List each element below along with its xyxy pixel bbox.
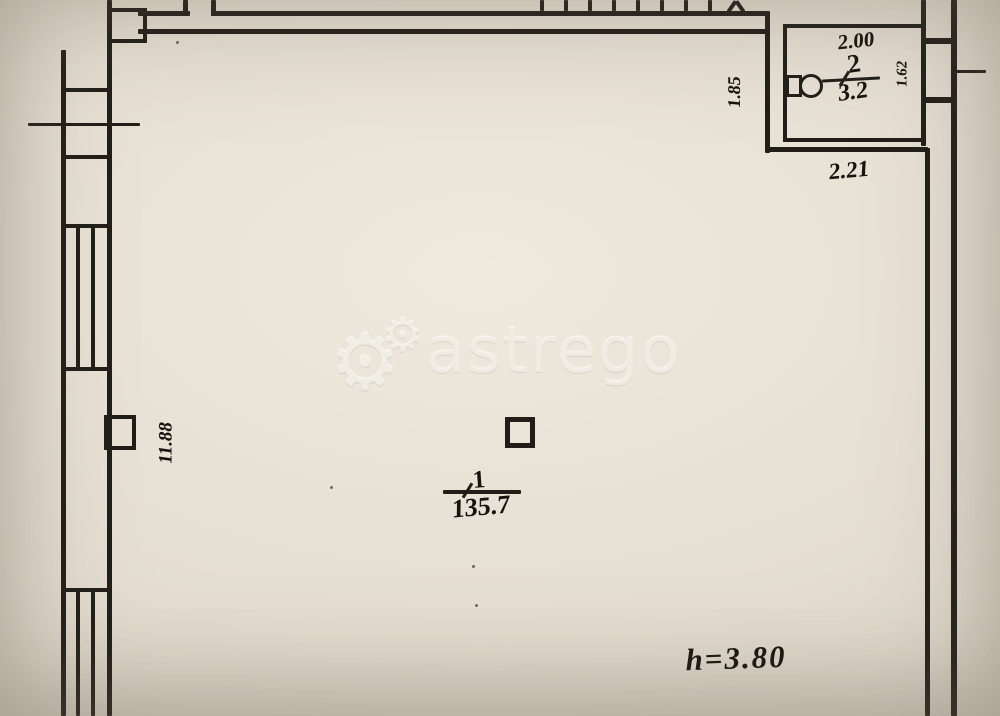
wall-left-divider-2	[61, 155, 112, 159]
window-left-lower-sill-top	[61, 588, 112, 592]
wall-hatch-tick	[564, 0, 568, 11]
wall-left-inner	[107, 0, 112, 716]
wall-hatch-tick	[684, 0, 688, 11]
shaft-stub-bottom	[921, 97, 954, 103]
scan-speck	[475, 604, 478, 607]
wall-hatch-tick	[588, 0, 592, 11]
wall-left-outer	[61, 50, 66, 716]
shaft-stub-top	[921, 38, 954, 44]
dimension-line-left	[28, 123, 140, 126]
toilet-bowl-icon	[799, 74, 823, 98]
dimension-right-shaft: 1.62	[896, 60, 911, 88]
window-left-upper-sill-bottom	[61, 367, 112, 371]
wall-top-left-niche	[107, 8, 147, 43]
window-left-lower-pane-1	[76, 590, 80, 716]
window-left-lower-pane-2	[91, 590, 95, 716]
scan-speck	[330, 486, 333, 489]
wall-top-opening-post-left	[183, 0, 188, 16]
wall-top-outer	[211, 11, 770, 16]
wall-hatch-tick	[660, 0, 664, 11]
room1-area: 135.7	[452, 491, 511, 522]
dimension-left-wall: 11.88	[157, 421, 176, 465]
wall-room2-left-outer	[765, 12, 770, 153]
dimension-room2-left: 1.85	[725, 75, 743, 108]
room2-area: 3.2	[838, 78, 868, 106]
wall-room2-bottom	[765, 147, 928, 152]
wall-hatch-tick	[708, 0, 712, 11]
window-left-upper-pane-1	[76, 224, 80, 371]
scan-speck	[472, 565, 475, 568]
ceiling-height-note: h=3.80	[685, 641, 787, 676]
window-left-upper-sill-top	[61, 224, 112, 228]
wall-hatch-tick	[636, 0, 640, 11]
column-square	[505, 417, 535, 448]
floor-plan-drawing: 1 135.7 2 3.2 2.00 2.21 1.85 1.62 11.88 …	[0, 0, 1000, 716]
wall-hatch-tick	[612, 0, 616, 11]
wall-right-inner	[925, 148, 930, 716]
scan-speck	[176, 41, 179, 44]
wall-pilaster-left	[104, 415, 136, 450]
dimension-line-right	[956, 70, 986, 73]
wall-right-outer	[951, 0, 957, 716]
wall-hatch-tick	[540, 0, 544, 11]
wall-top-inner	[138, 29, 770, 34]
scanned-floor-plan-page: 1 135.7 2 3.2 2.00 2.21 1.85 1.62 11.88 …	[0, 0, 1000, 716]
dimension-room2-bottom: 2.21	[828, 157, 869, 184]
window-left-upper-pane-2	[91, 224, 95, 371]
dimension-room2-top: 2.00	[837, 28, 874, 53]
wall-left-divider-1	[61, 88, 112, 92]
